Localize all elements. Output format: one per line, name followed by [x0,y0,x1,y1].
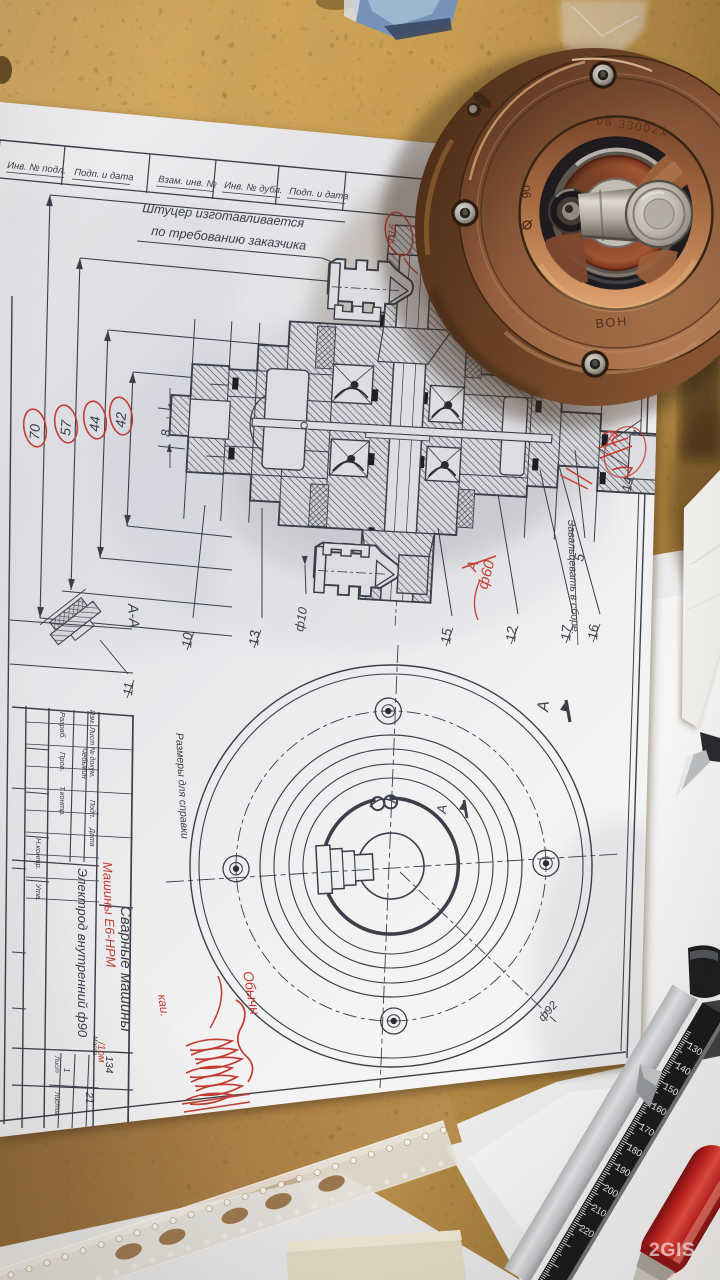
svg-text:2GIS: 2GIS [649,1239,695,1261]
